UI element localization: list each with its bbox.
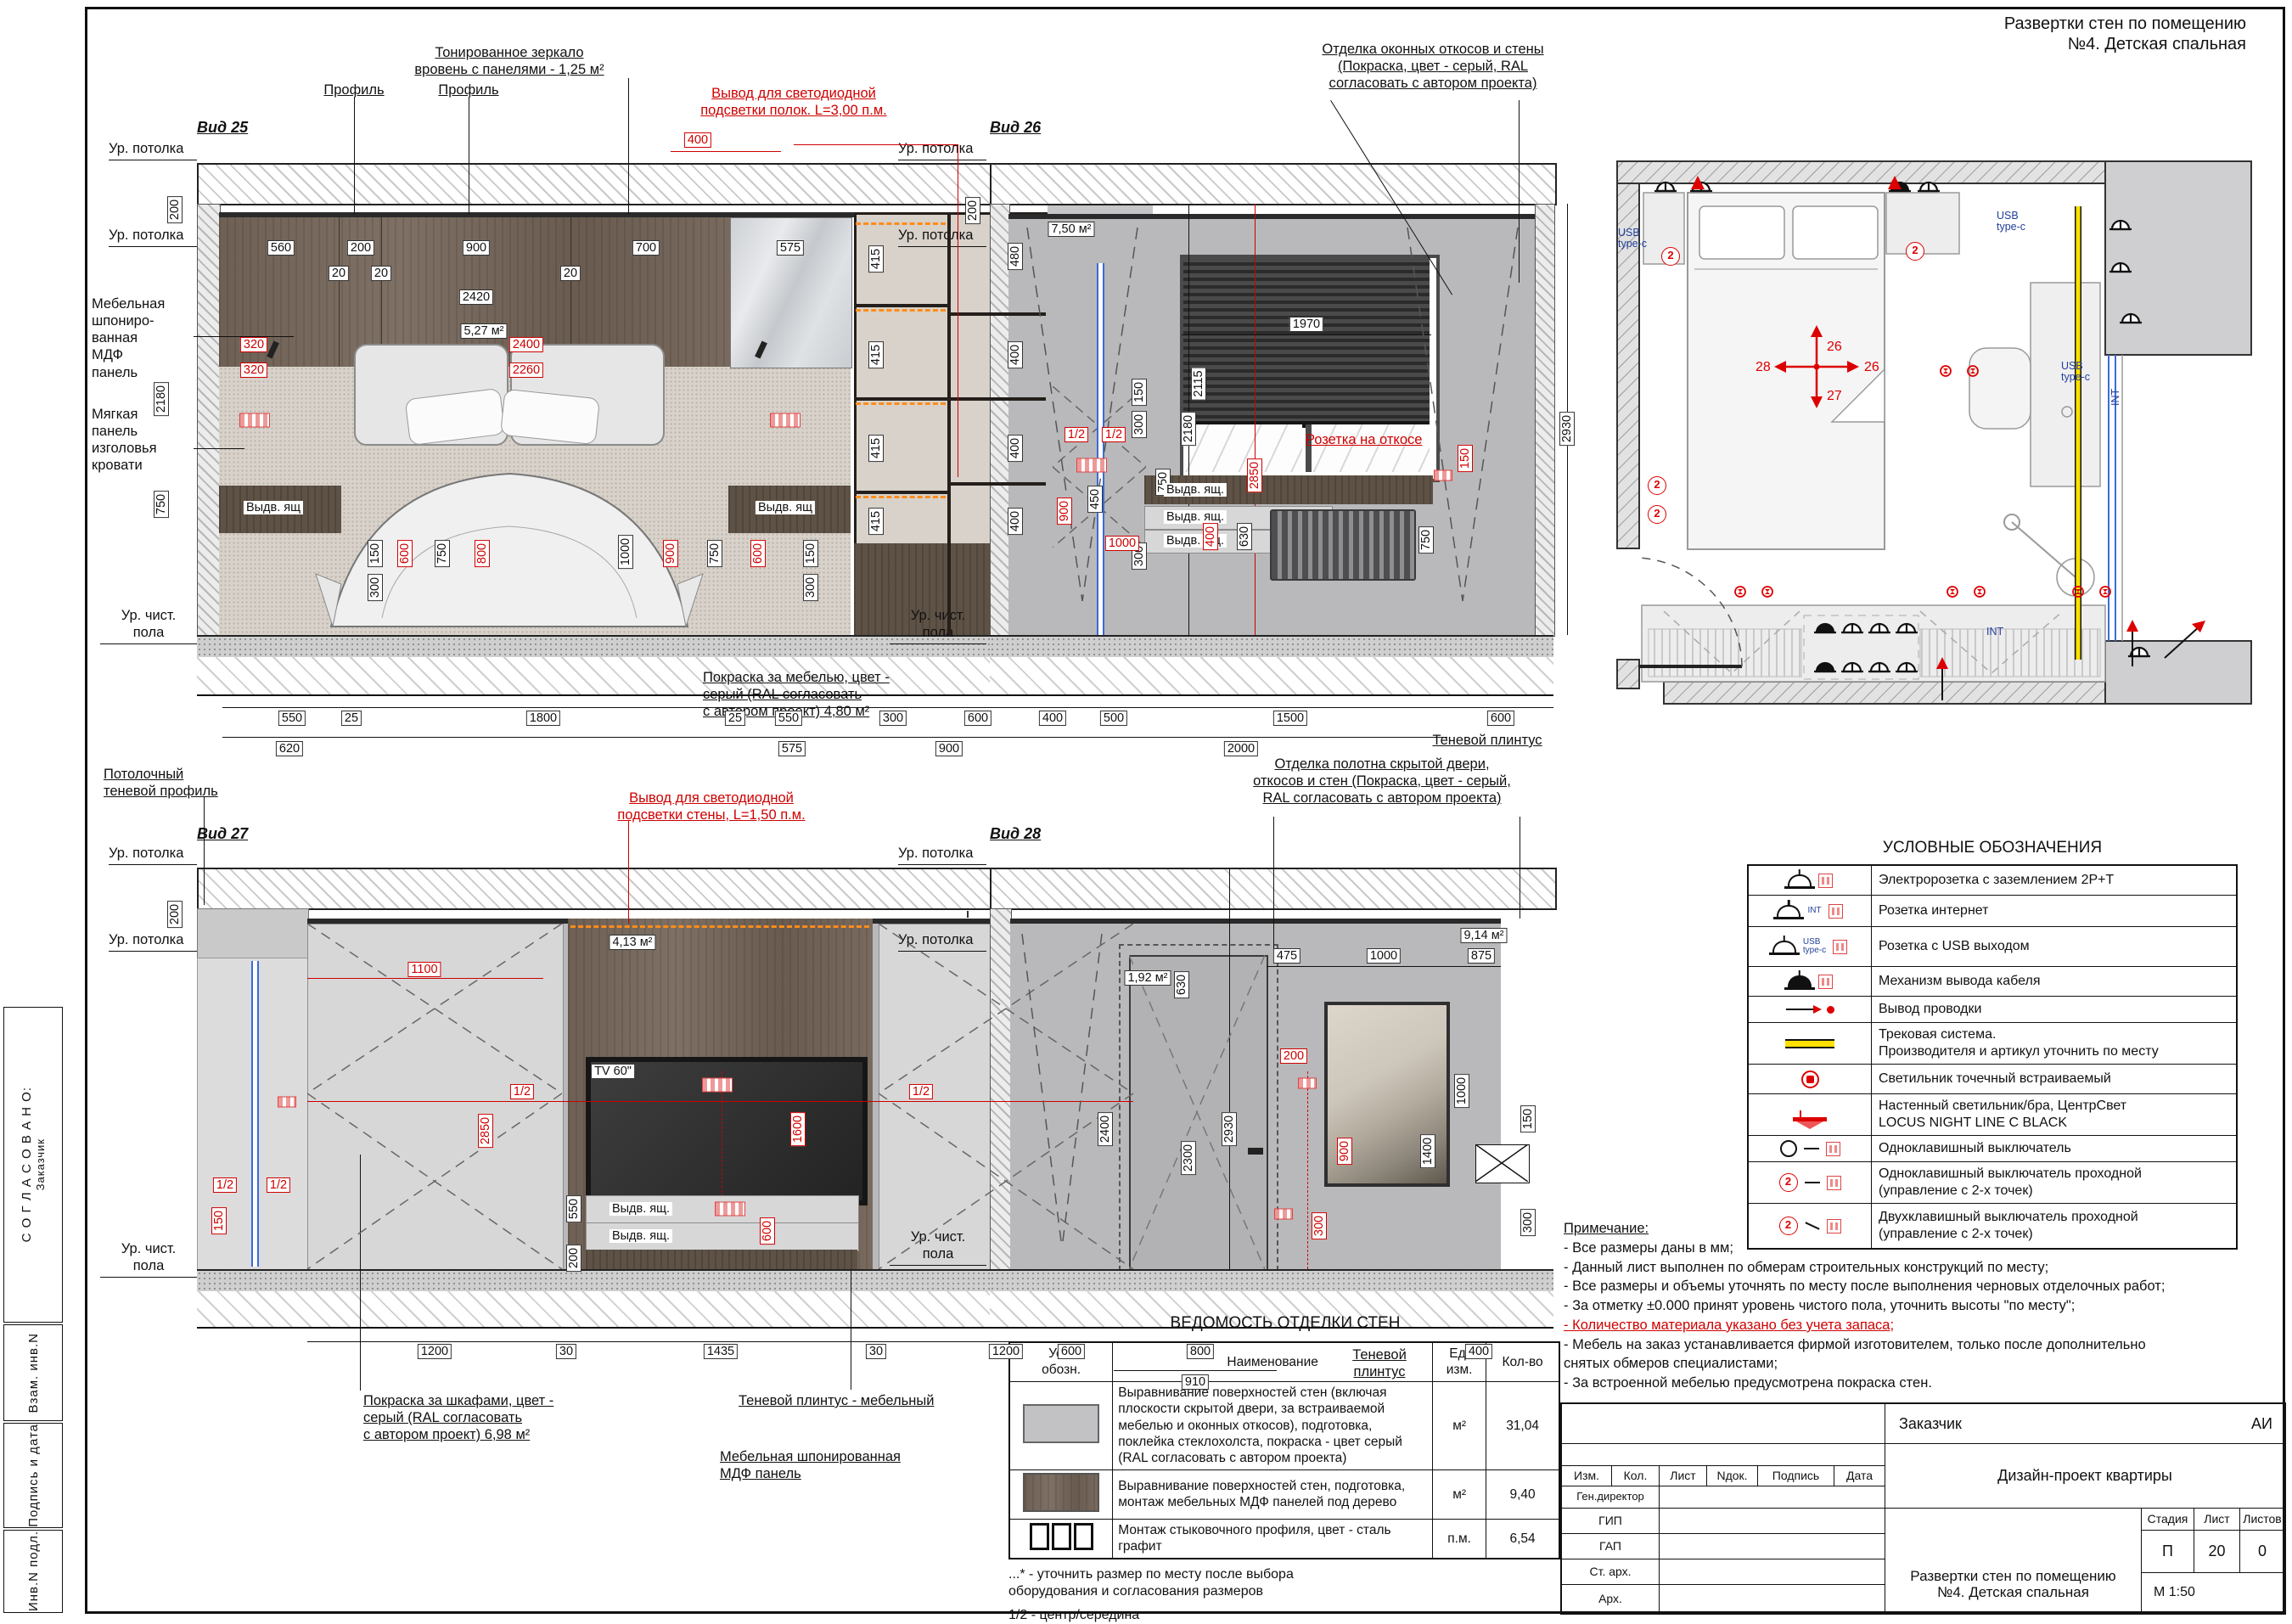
socket-ground-icon [1749,866,1872,895]
footnote: ...* - уточнить размер по месту после вы… [1008,1566,1562,1600]
dim: 20 [371,266,391,281]
dim: 20 [329,266,349,281]
ceiling-level: Ур. потолка [109,228,197,247]
dim: 1400 [1420,1134,1435,1168]
dim: 200 [347,240,374,256]
tb-stage-label: Стадия [2141,1508,2194,1530]
door-x [1129,955,1265,1269]
dim: 550 [566,1195,581,1222]
tb-doc-title: Развертки стен по помещению №4. Детская … [1885,1508,2141,1613]
dim: 415 [868,508,884,535]
customer-label: Заказчик [34,1138,47,1190]
socket-icon [239,413,270,428]
dim: 400 [1465,1344,1492,1359]
dim: 1970 [1289,317,1323,332]
tb-customer-value: АИ [2207,1404,2284,1443]
dim: 400 [1008,341,1023,368]
dim: 600 [1058,1344,1085,1359]
footnote: 1/2 - центр/середина [1008,1607,1562,1624]
dim: 750 [707,540,722,567]
dim: 600 [397,540,413,567]
notes: Примечание: - Все размеры даны в мм; - Д… [1564,1219,2243,1393]
dim: 1100 [407,962,441,977]
swatch-profile [1009,1520,1113,1559]
legend-label: Одноклавишный выключатель проходной (упр… [1872,1162,2236,1203]
sidebar-vzam: Взам. инв.N [3,1324,63,1421]
radiator [1270,509,1416,581]
plinth-note: Теневой плинтус - мебельный [739,1392,934,1409]
switch-marker: 2 [1906,242,1924,261]
tb-sheet-label: Лист [2194,1508,2239,1530]
dim: 150 [368,540,383,567]
sidebar-label: Подпись и дата [26,1424,41,1527]
dim: 480 [1008,243,1023,270]
dim: 2400 [1098,1112,1113,1146]
view28-title: Вид 28 [990,825,1041,844]
dim: 415 [868,341,884,368]
view-marker: 26 [1864,360,1879,374]
dim: 875 [1468,948,1495,964]
dim: 300 [1132,411,1147,438]
dim: 2115 [1191,367,1206,400]
legend: УСЛОВНЫЕ ОБОЗНАЧЕНИЯ Электророзетка с за… [1747,839,2238,1250]
dim: 2180 [1181,412,1196,446]
dim: 200 [167,196,183,223]
socket-icon [278,1097,296,1108]
dim: 1000 [1367,948,1401,964]
legend-label: Механизм вывода кабеля [1872,967,2236,996]
view-marker: 27 [1827,389,1842,403]
area-label: 1,92 м² [1124,970,1171,986]
socket-icon [1076,458,1107,473]
ceiling-level: Ур. потолка [109,846,197,865]
dim: 300 [368,574,383,601]
dim: 30 [866,1344,886,1359]
dim: 550 [278,711,306,726]
dim: 1500 [1273,711,1307,726]
dim: 2850 [478,1114,493,1148]
area-label: 4,13 м² [609,935,655,950]
mirror-note: Тонированное зеркало вровень с панелями … [414,44,604,78]
dim: 400 [1203,523,1218,550]
approved-label: С О Г Л А С О В А Н О: [20,1087,34,1242]
sheet-title: Развертки стен по помещению №4. Детская … [2004,14,2246,55]
dim: 150 [1520,1105,1536,1132]
door-handle [1248,1148,1263,1155]
ceiling-level: Ур. потолка [898,228,986,247]
dim: 1435 [704,1344,738,1359]
dim: 200 [566,1245,581,1272]
area-label: 5,27 м² [460,323,507,339]
dim: 1000 [1105,536,1139,551]
dim: 910 [1182,1374,1209,1390]
tb-col: Кол. [1611,1465,1659,1486]
dim: 550 [775,711,802,726]
cable-outlet-icon [1749,967,1872,996]
dim: 750 [435,540,450,567]
legend-label: Электророзетка с заземлением 2P+T [1872,866,2236,895]
tb-sheet: 20 [2194,1530,2239,1572]
dim: 1200 [989,1344,1023,1359]
sidebar-label: Взам. инв.N [26,1333,41,1413]
label: Выдв. ящ [244,501,303,514]
swatch-gray [1009,1381,1113,1469]
int-label: INT [2110,389,2121,406]
dim: 200 [965,197,980,224]
tb-role: ГАП [1562,1533,1659,1559]
shadow-profile [1008,214,1535,219]
dim: 1/2 [213,1177,237,1193]
dim: 575 [778,741,806,756]
dim: 2260 [509,362,543,378]
label: Выдв. ящ. [610,1202,672,1216]
socket-icon [715,1202,745,1217]
label: Выдв. ящ. [1164,510,1227,524]
dim: 600 [1487,711,1514,726]
led-note: Вывод для светодиодной подсветки стены, … [617,790,805,823]
legend-label: Трековая система. Производителя и артику… [1872,1023,2236,1064]
label: Выдв. ящ. [1164,483,1227,497]
area-label: 7,50 м² [1048,222,1094,237]
switch-icon [1749,1136,1872,1161]
dim: 400 [1039,711,1066,726]
dim: 450 [1087,486,1103,513]
dim: 800 [475,540,490,567]
ceiling-section [990,163,1557,205]
usb-label: USB type-c [1618,228,1647,250]
wall-xmark [1399,228,1526,627]
dim: 150 [1458,445,1473,472]
switch-marker: 2 [1661,247,1680,266]
view26-title: Вид 26 [990,119,1041,138]
tb-col: Дата [1834,1465,1885,1486]
row-unit: м² [1433,1381,1486,1469]
notes-title: Примечание: [1564,1219,2243,1239]
sidebar-label: Инв.N подл. [26,1531,41,1611]
socket-usb-icon: USB type-c [1749,927,1872,966]
tb-role: Арх. [1562,1584,1659,1613]
dim: 300 [879,711,907,726]
sconce-icon [1749,1094,1872,1135]
ceiling-level: Ур. потолка [109,141,197,160]
schedule-title: ВЕДОМОСТЬ ОТДЕЛКИ СТЕН [1008,1314,1562,1333]
dim: 400 [1008,508,1023,535]
dim: 150 [211,1207,227,1234]
floor-screed [990,635,1553,660]
dim: 1800 [526,711,560,726]
dim: 900 [463,240,490,256]
dim: 200 [167,901,183,928]
tb-role: Ген.директор [1562,1486,1659,1508]
dim: 400 [684,132,711,148]
dim: 630 [1237,523,1252,550]
note-item: - Количество материала указано без учета… [1564,1316,2243,1335]
col-header: Наименование [1113,1342,1433,1381]
v26-note: Отделка оконных откосов и стены (Покраск… [1322,41,1543,92]
dim: 150 [803,540,818,567]
sidebar-inv: Инв.N подл. [3,1530,63,1613]
legend-label: Светильник точечный встраиваемый [1872,1065,2236,1093]
dim: 415 [868,435,884,462]
dim: 1600 [790,1112,806,1146]
tb-col: Nдок. [1706,1465,1757,1486]
paint-note: Покраска за шкафами, цвет - серый (RAL с… [363,1392,553,1443]
title-block: Изм. Кол. Лист Nдок. Подпись Дата Ген.ди… [1560,1402,2286,1615]
dim: 900 [1337,1138,1352,1165]
row-qty: 31,04 [1486,1381,1559,1469]
dim: 2930 [1222,1112,1237,1146]
dim: 2420 [459,289,493,305]
dim: 200 [1280,1048,1307,1064]
dim: 600 [964,711,992,726]
dim: 750 [154,491,169,518]
dim: 320 [240,337,267,352]
socket-icon [1274,1209,1293,1220]
legend-label: Одноклавишный выключатель [1872,1136,2236,1161]
usb-label: USB type-c [2061,361,2090,383]
dim: 2180 [154,382,169,416]
dim: 415 [868,245,884,273]
dim: 1000 [618,535,633,569]
view-marker: 28 [1756,360,1771,374]
finish-schedule: ВЕДОМОСТЬ ОТДЕЛКИ СТЕН Усл. обозн. Наиме… [1008,1314,1562,1624]
dim: 800 [1187,1344,1214,1359]
shadow-note: Потолочный теневой профиль [104,766,218,800]
legend-label: Вывод проводки [1872,997,2236,1022]
dim: 25 [341,711,362,726]
floor-level: Ур. чист. пола [890,608,986,644]
note-item: - Все размеры и объемы уточнять по месту… [1564,1277,2243,1296]
floor-level: Ур. чист. пола [100,1241,197,1278]
tb-project: Дизайн-проект квартиры [1885,1443,2284,1508]
swatch-wood [1009,1469,1113,1519]
dim: 620 [276,741,303,756]
track-system-icon [1749,1023,1872,1064]
dim: 900 [1057,497,1072,525]
legend-label: Розетка интернет [1872,896,2236,926]
floor-structure [990,657,1553,696]
dim: 750 [1418,526,1434,554]
ceiling-level: Ур. потолка [898,846,986,865]
floor-plan: 26 26 27 28 [1613,157,2258,717]
dim: 300 [1312,1212,1327,1239]
sidebar-approved: С О Г Л А С О В А Н О: Заказчик [3,1007,63,1323]
tb-col: Изм. [1562,1465,1611,1486]
shadow-profile-block [197,908,309,959]
socket-icon [770,413,801,428]
dim: 25 [725,711,745,726]
floor-level: Ур. чист. пола [100,608,197,644]
dim: 2400 [509,337,543,352]
socket-icon [1434,470,1452,481]
drawer-base [586,1250,857,1269]
dim: 700 [632,240,660,256]
bed [280,338,747,637]
area-label: 9,14 м² [1460,928,1507,943]
dim: 1/2 [1065,427,1088,442]
mdf-note: Мебельная шпонированная МДФ панель [720,1448,901,1482]
v28-note: Отделка полотна скрытой двери, откосов и… [1253,756,1511,806]
tb-scale: М 1:50 [2141,1572,2284,1613]
tb-col: Подпись [1757,1465,1834,1486]
legend-label: Розетка с USB выходом [1872,927,2236,966]
note-item: - Данный лист выполнен по обмерам строит… [1564,1258,2243,1278]
dim: 600 [750,540,766,567]
dim: 400 [1008,435,1023,462]
ceiling-level: Ур. потолка [109,932,197,952]
note-item: - За встроенной мебелью предусмотрена по… [1564,1374,2243,1393]
dim: 320 [240,362,267,378]
tb-col: Лист [1659,1465,1706,1486]
legend-label: Настенный светильник/бра, ЦентрСвет LOCU… [1872,1094,2236,1135]
dim: 1/2 [267,1177,290,1193]
dim [967,911,969,918]
tb-sheets: 0 [2239,1530,2284,1572]
switch-marker: 2 [1648,476,1666,495]
dim: 20 [560,266,581,281]
dim: 560 [267,240,295,256]
view25-title: Вид 25 [197,119,248,138]
dim: 475 [1273,948,1300,964]
floor-screed [990,1269,1553,1294]
wiring-outlet-icon [1749,997,1872,1022]
socket-note: Розетка на откосе [1306,431,1422,448]
row-name: Выравнивание поверхностей стен, подготов… [1113,1469,1433,1519]
row-name: Монтаж стыковочного профиля, цвет - стал… [1113,1520,1433,1559]
row-qty: 9,40 [1486,1469,1559,1519]
drawing-sheet: { "header": {"title": "Развертки стен по… [0,0,2292,1621]
socket-icon [1298,1078,1317,1089]
tb-role: ГИП [1562,1508,1659,1533]
socket-icon [702,1078,733,1093]
tb-sheets-label: Листов [2239,1508,2284,1530]
spotlight-icon [1749,1065,1872,1093]
note-item: - За отметку ±0.000 принят уровень чисто… [1564,1296,2243,1316]
label: Выдв. ящ [756,501,815,514]
row-qty: 6,54 [1486,1520,1559,1559]
col-header: Кол-во [1486,1342,1559,1381]
dim: 900 [935,741,963,756]
dim: 30 [556,1344,576,1359]
usb-label: USB type-c [1997,211,2025,233]
led-note: Вывод для светодиодной подсветки полок. … [700,85,887,119]
dim: 1/2 [1102,427,1126,442]
dim: 2850 [1247,458,1262,492]
label: Выдв. ящ. [610,1229,672,1243]
note-item: - Мебель на заказ устанавливается фирмой… [1564,1335,2243,1374]
row-unit: п.м. [1433,1520,1486,1559]
soft-note: Мягкая панель изголовья кровати [92,406,157,475]
note-item: - Все размеры даны в мм; [1564,1239,2243,1258]
dim: 1/2 [909,1084,933,1099]
view-marker: 26 [1827,340,1842,354]
legend-title: УСЛОВНЫЕ ОБОЗНАЧЕНИЯ [1747,839,2238,857]
dim: 900 [663,540,678,567]
dim: 1000 [1454,1074,1469,1108]
tb-stage: П [2141,1530,2194,1572]
wall-section [197,204,221,637]
dim: 575 [777,240,804,256]
dim: 1200 [418,1344,452,1359]
int-label: INT [1986,627,2003,638]
dim: 630 [1174,971,1189,998]
dim: 500 [1100,711,1127,726]
dim: 300 [1520,1209,1536,1236]
dim: 150 [1132,379,1147,406]
socket-internet-icon: INT [1749,896,1872,926]
window-edge [251,961,259,1267]
plinth-note: Теневой плинтус [1432,732,1542,749]
dim: 300 [803,574,818,601]
sidebar-podpis: Подпись и дата [3,1423,63,1528]
blinds [1183,258,1430,428]
switch-2way-icon: 2 [1749,1162,1872,1203]
dim: 2930 [1559,412,1575,446]
vent-x [1475,1144,1528,1182]
view27-title: Вид 27 [197,825,248,844]
dim: 600 [760,1217,775,1245]
wall-xmark [1015,934,1109,1265]
row-name: Выравнивание поверхностей стен (включая … [1113,1381,1433,1469]
wall-section [1535,204,1555,637]
mdf-note: Мебельная шпониро- ванная МДФ панель [92,295,165,381]
dim: 2300 [1181,1141,1196,1175]
row-unit: м² [1433,1469,1486,1519]
tb-role: Ст. арх. [1562,1559,1659,1584]
switch-marker: 2 [1648,505,1666,524]
dim: 2000 [1224,741,1258,756]
tv-label: TV 60" [592,1065,634,1078]
dim: 1/2 [510,1084,534,1099]
window-glass [1183,424,1302,472]
